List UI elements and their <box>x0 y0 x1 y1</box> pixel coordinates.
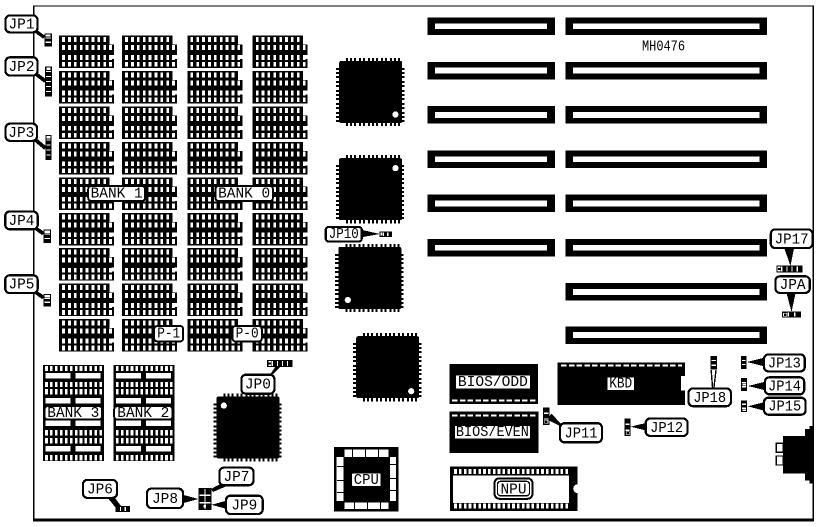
svg-text:JP7: JP7 <box>223 469 249 486</box>
svg-text:P-0: P-0 <box>236 326 259 343</box>
svg-text:JP0: JP0 <box>245 377 271 394</box>
svg-text:JP8: JP8 <box>152 491 178 508</box>
svg-text:JP4: JP4 <box>8 213 34 230</box>
svg-text:JP12: JP12 <box>650 420 683 437</box>
svg-text:NPU: NPU <box>501 482 527 499</box>
svg-text:JP3: JP3 <box>8 125 34 142</box>
svg-text:JP14: JP14 <box>768 378 801 395</box>
svg-text:MH0476: MH0476 <box>642 39 685 56</box>
svg-text:JP11: JP11 <box>565 425 598 442</box>
svg-text:BIOS/ODD: BIOS/ODD <box>458 374 528 391</box>
svg-text:BANK 2: BANK 2 <box>117 405 169 422</box>
svg-text:CPU: CPU <box>354 472 379 489</box>
svg-text:JP15: JP15 <box>768 399 801 416</box>
svg-text:BIOS/EVEN: BIOS/EVEN <box>456 424 529 441</box>
svg-text:JP9: JP9 <box>231 497 257 514</box>
svg-text:JP13: JP13 <box>768 355 801 372</box>
svg-text:BANK 0: BANK 0 <box>218 185 270 202</box>
svg-text:KBD: KBD <box>609 376 632 393</box>
svg-text:JPA: JPA <box>780 277 806 294</box>
svg-text:P-1: P-1 <box>157 326 180 343</box>
svg-text:JP10: JP10 <box>329 226 359 243</box>
svg-text:BANK 3: BANK 3 <box>47 405 99 422</box>
svg-text:JP6: JP6 <box>87 481 113 498</box>
svg-text:JP17: JP17 <box>775 231 809 248</box>
svg-text:JP2: JP2 <box>9 59 35 76</box>
svg-text:JP18: JP18 <box>693 390 726 407</box>
svg-text:JP5: JP5 <box>8 277 34 294</box>
svg-text:JP1: JP1 <box>9 16 35 33</box>
svg-text:BANK 1: BANK 1 <box>91 185 143 202</box>
